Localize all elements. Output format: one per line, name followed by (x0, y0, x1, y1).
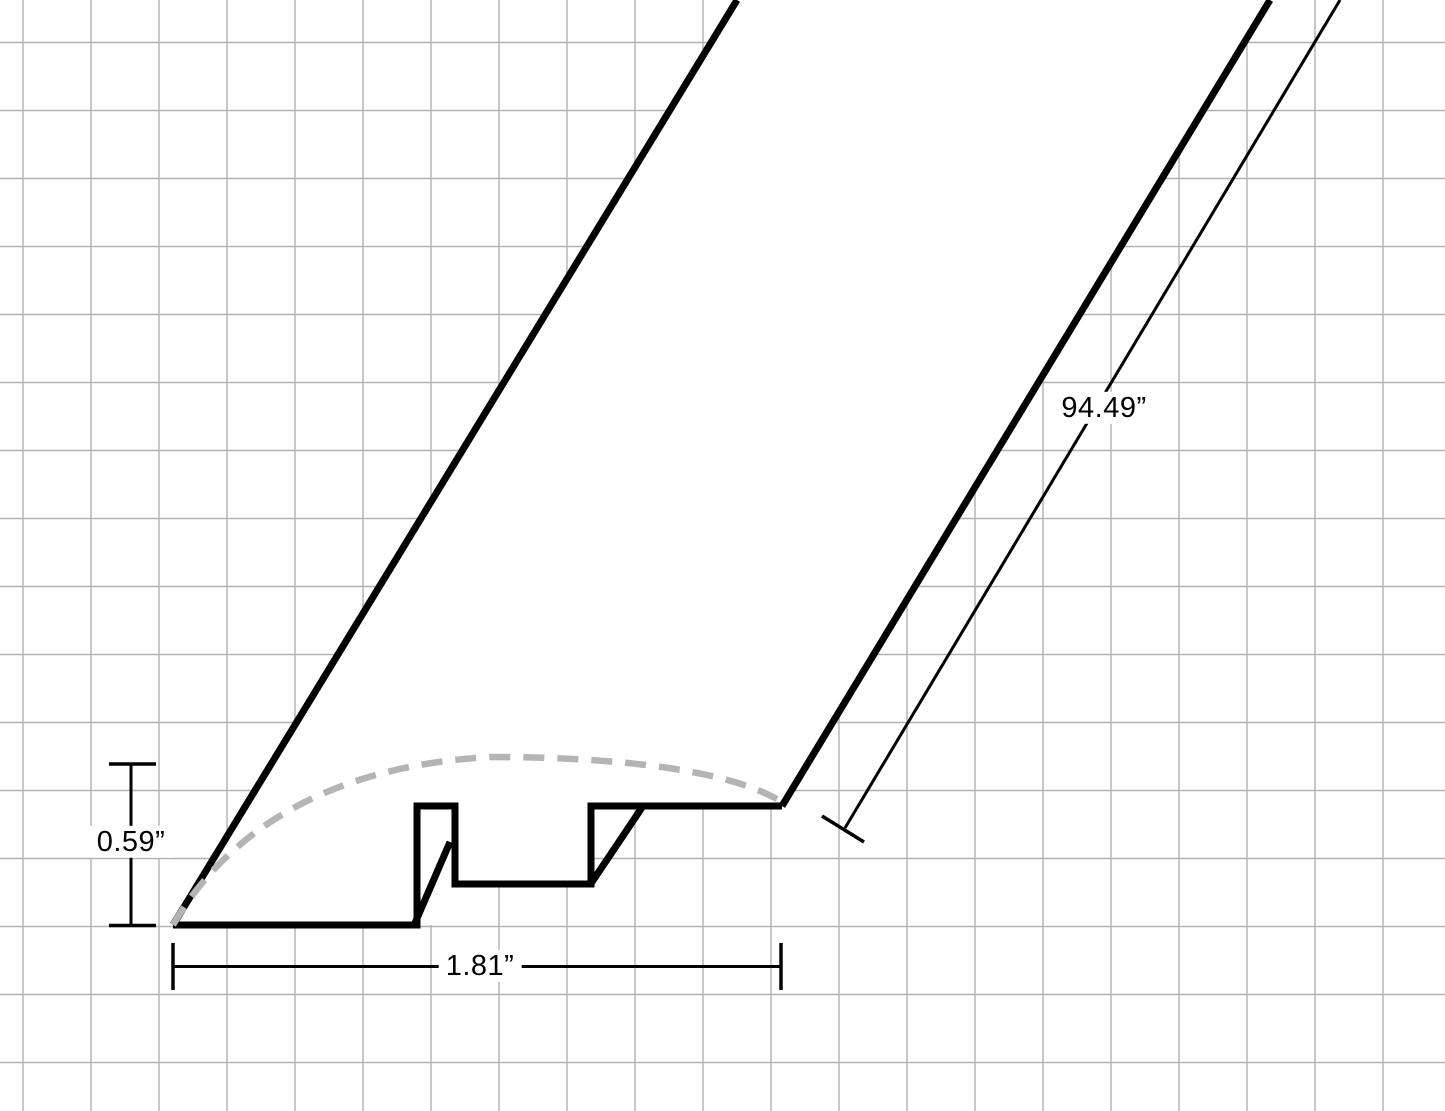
height-dimension-label: 0.59” (90, 826, 173, 858)
width-dimension-label: 1.81” (439, 950, 522, 982)
drawing-svg (0, 0, 1445, 1111)
length-dimension-label: 94.49” (1054, 392, 1153, 424)
molding-profile-drawing: 0.59” 1.81” 94.49” (0, 0, 1445, 1111)
length-dimension-cap (822, 816, 864, 842)
